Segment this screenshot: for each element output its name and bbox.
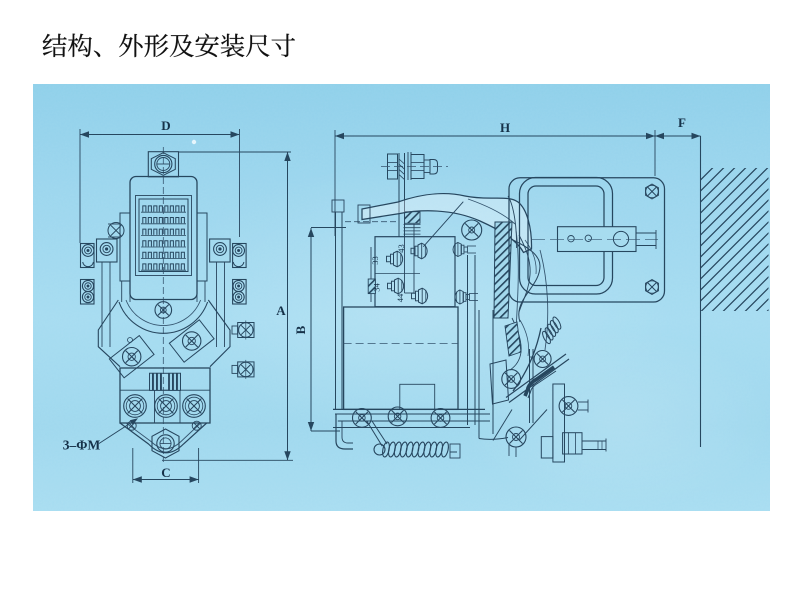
svg-text:B: B — [293, 325, 308, 334]
svg-text:43: 43 — [396, 244, 406, 253]
svg-text:A: A — [276, 303, 286, 318]
svg-text:33: 33 — [370, 256, 380, 265]
svg-text:C: C — [161, 465, 170, 480]
svg-text:44: 44 — [395, 293, 405, 302]
svg-text:D: D — [161, 118, 170, 133]
svg-text:H: H — [500, 120, 510, 135]
svg-text:F: F — [678, 115, 686, 130]
svg-text:3–ΦM: 3–ΦM — [63, 438, 101, 453]
svg-text:34: 34 — [372, 283, 382, 292]
